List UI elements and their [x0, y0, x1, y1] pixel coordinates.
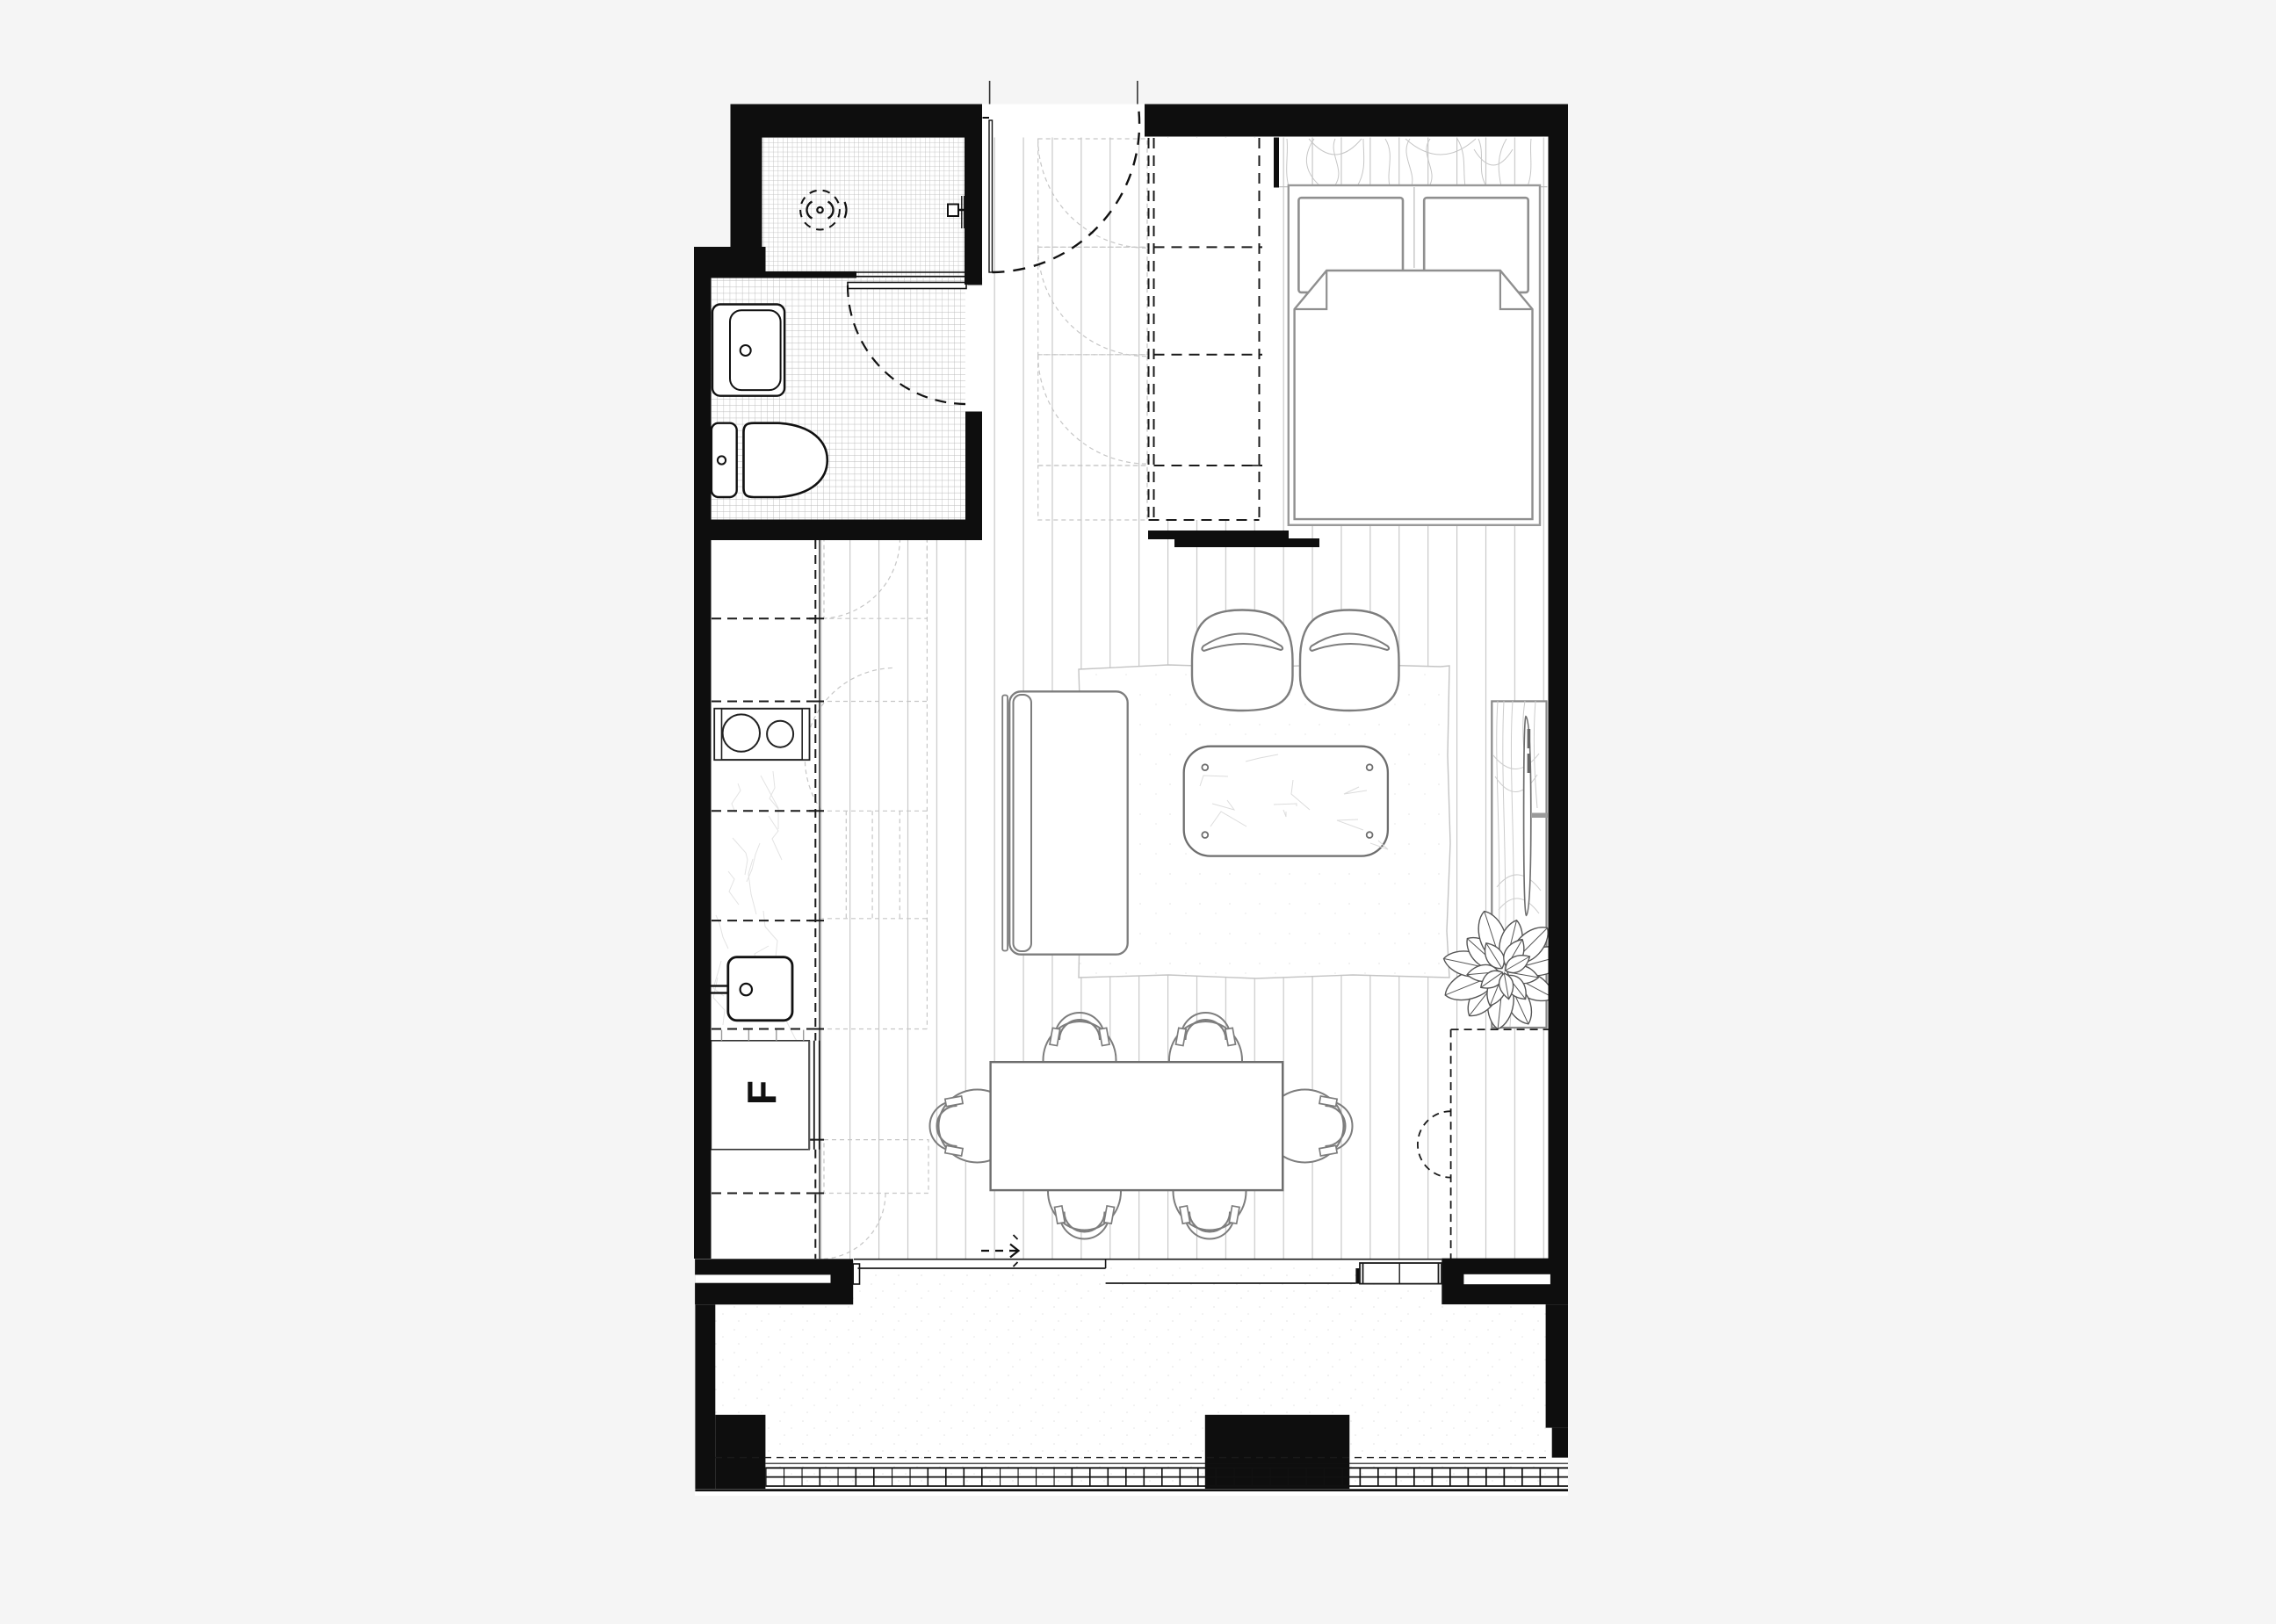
svg-text:F: F: [739, 1080, 784, 1105]
